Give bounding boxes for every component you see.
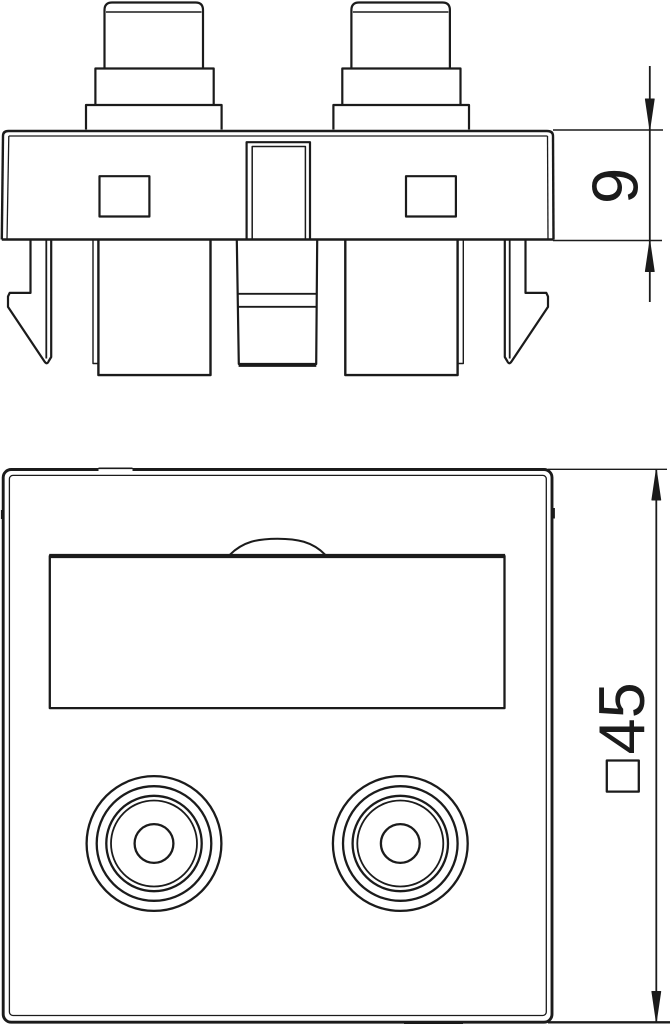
svg-text:45: 45	[585, 682, 658, 754]
svg-text:9: 9	[579, 168, 652, 204]
